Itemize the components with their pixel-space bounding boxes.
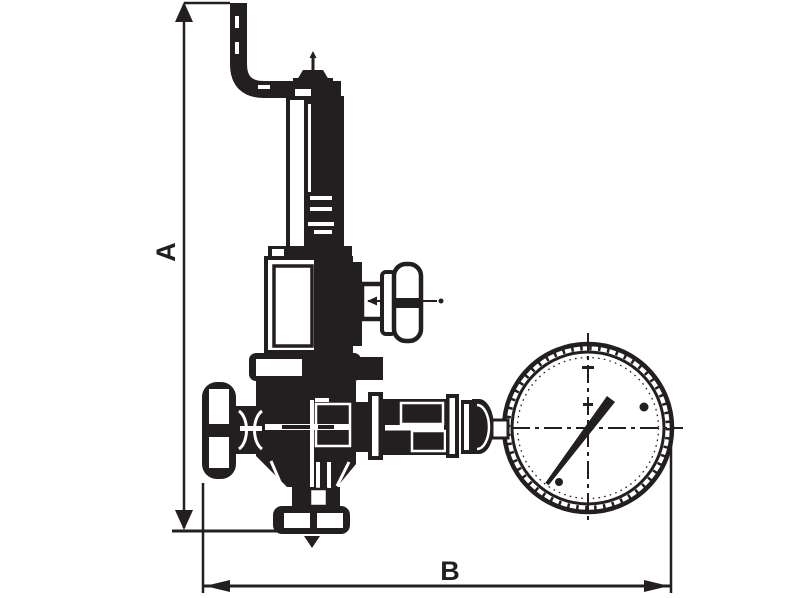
union-flange-slit [372, 396, 379, 456]
spring-nut-highlight [308, 222, 334, 226]
outlet-neck-slit [327, 462, 331, 488]
body-step-highlight [315, 398, 329, 402]
cap-base [293, 78, 333, 89]
pressure-gauge [504, 333, 683, 523]
union-connector [354, 402, 370, 452]
spring-housing [268, 98, 352, 261]
dimension-arrow-icon [175, 510, 193, 530]
body-centerline-dash [282, 425, 312, 429]
bonnet-inner-panel [274, 266, 312, 346]
gauge-max-marker-dot [640, 403, 649, 412]
stem-centerline-band [240, 426, 262, 431]
spring-nut-highlight [310, 207, 332, 211]
bonnet-body-flange [249, 353, 383, 381]
union-nut-slit [464, 404, 469, 450]
handwheel-cell [209, 437, 229, 468]
union-fitting [354, 392, 508, 460]
spring-nut-highlight [314, 230, 332, 234]
gauge-stem [492, 420, 508, 438]
valve-body [250, 381, 356, 489]
bonnet-shaded-side [314, 260, 351, 350]
adjusting-screw-tip [310, 51, 317, 58]
dimension-arrow-icon [205, 580, 230, 592]
dimension-a-label: A [151, 242, 181, 262]
outlet-neck-slit [316, 462, 320, 488]
pipe-highlight [235, 42, 239, 54]
dimension-b-label: B [440, 556, 460, 586]
gauge-scale-tick [583, 403, 593, 406]
technical-diagram: A B [0, 0, 800, 598]
outlet-flange-window [284, 513, 310, 528]
outlet-neck-window [310, 489, 327, 506]
union-flange-slit [450, 398, 456, 454]
outlet-drip-pointer [304, 536, 320, 548]
gauge-scale-tick [582, 366, 594, 369]
spring-stem-highlight [308, 104, 311, 192]
body-centerline-dash [318, 425, 334, 429]
pipe-highlight [258, 85, 270, 89]
dimension-arrow-icon [175, 2, 193, 22]
outlet-flange-window [317, 513, 343, 528]
union-centerline-slit [385, 425, 444, 431]
side-test-tap [350, 262, 444, 346]
spring-nut-highlight [310, 196, 332, 200]
dimension-arrow-icon [644, 580, 669, 592]
gauge-needle-counterweight-dot [555, 478, 563, 486]
handle-hub-band [396, 298, 419, 308]
handwheel [202, 382, 265, 479]
pipe-highlight [235, 16, 239, 28]
tap-centerline-dot [439, 299, 444, 304]
handwheel-cell [209, 389, 229, 424]
body-mass [256, 381, 356, 487]
valve-bonnet [266, 258, 351, 352]
flange-right-step [355, 357, 383, 380]
flange-window [256, 359, 302, 376]
body-inner-slit [310, 400, 314, 488]
